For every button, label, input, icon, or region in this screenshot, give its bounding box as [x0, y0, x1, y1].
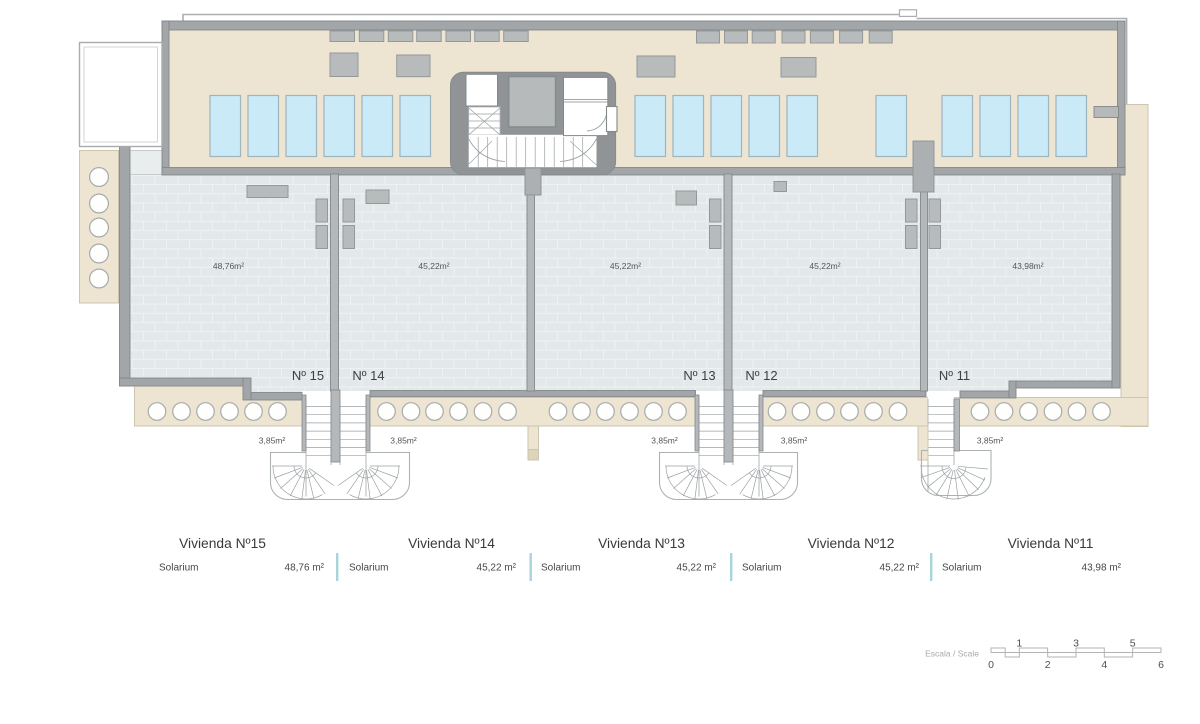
svg-text:Vivienda Nº12: Vivienda Nº12	[808, 536, 895, 551]
svg-text:Vivienda Nº14: Vivienda Nº14	[408, 536, 495, 551]
svg-text:1: 1	[1016, 638, 1022, 650]
svg-text:3,85m²: 3,85m²	[977, 436, 1004, 446]
svg-text:3,85m²: 3,85m²	[651, 436, 678, 446]
svg-text:48,76m²: 48,76m²	[213, 261, 244, 271]
svg-text:0: 0	[988, 659, 994, 671]
svg-text:Nº 13: Nº 13	[683, 368, 715, 383]
svg-text:6: 6	[1158, 659, 1164, 671]
svg-text:5: 5	[1130, 638, 1136, 650]
svg-text:Vivienda Nº13: Vivienda Nº13	[598, 536, 685, 551]
svg-text:45,22m²: 45,22m²	[418, 261, 449, 271]
svg-text:Solarium: Solarium	[349, 563, 388, 574]
svg-text:48,76 m²: 48,76 m²	[285, 563, 325, 574]
svg-text:Solarium: Solarium	[541, 563, 580, 574]
svg-text:45,22 m²: 45,22 m²	[880, 563, 920, 574]
svg-text:Nº 15: Nº 15	[292, 368, 324, 383]
svg-text:Nº 12: Nº 12	[745, 368, 777, 383]
svg-text:45,22m²: 45,22m²	[809, 261, 840, 271]
svg-text:Escala / Scale: Escala / Scale	[925, 649, 979, 659]
svg-text:43,98m²: 43,98m²	[1012, 261, 1043, 271]
svg-text:43,98 m²: 43,98 m²	[1082, 563, 1122, 574]
svg-text:3: 3	[1073, 638, 1079, 650]
svg-text:4: 4	[1101, 659, 1107, 671]
svg-text:45,22 m²: 45,22 m²	[477, 563, 517, 574]
svg-text:Vivienda Nº15: Vivienda Nº15	[179, 536, 266, 551]
svg-text:3,85m²: 3,85m²	[781, 436, 808, 446]
svg-text:Solarium: Solarium	[742, 563, 781, 574]
svg-text:2: 2	[1045, 659, 1051, 671]
svg-text:Nº 11: Nº 11	[939, 368, 970, 383]
svg-text:45,22m²: 45,22m²	[610, 261, 641, 271]
svg-text:3,85m²: 3,85m²	[259, 436, 286, 446]
svg-text:Solarium: Solarium	[942, 563, 981, 574]
svg-text:45,22 m²: 45,22 m²	[677, 563, 717, 574]
svg-text:Vivienda Nº11: Vivienda Nº11	[1008, 536, 1094, 551]
svg-text:3,85m²: 3,85m²	[390, 436, 417, 446]
svg-text:Solarium: Solarium	[159, 563, 198, 574]
svg-text:Nº 14: Nº 14	[352, 368, 384, 383]
